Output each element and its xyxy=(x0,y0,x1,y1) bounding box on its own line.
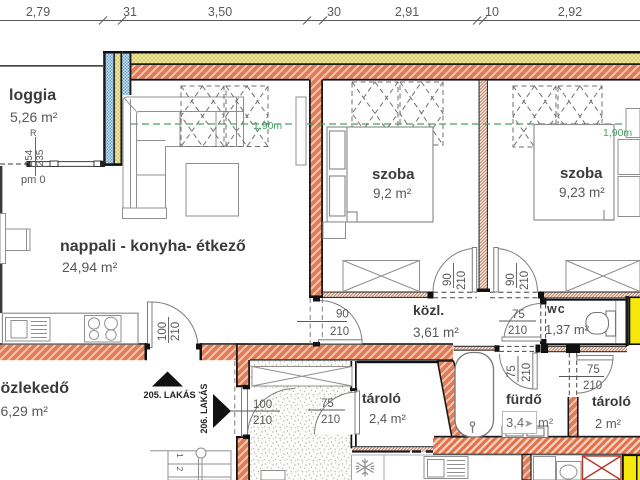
svg-text:6,29 m²: 6,29 m² xyxy=(1,403,49,419)
svg-text:30: 30 xyxy=(327,5,341,19)
svg-text:90: 90 xyxy=(442,273,454,286)
svg-text:10: 10 xyxy=(485,5,499,19)
svg-text:90: 90 xyxy=(336,309,349,321)
svg-text:205. LAKÁS: 205. LAKÁS xyxy=(144,389,196,400)
svg-text:loggia: loggia xyxy=(9,87,56,104)
svg-text:1,37 m²: 1,37 m² xyxy=(545,322,590,337)
svg-text:m²: m² xyxy=(538,415,554,430)
svg-text:254: 254 xyxy=(24,149,35,166)
svg-text:90: 90 xyxy=(505,273,517,286)
svg-text:75: 75 xyxy=(587,364,600,376)
svg-text:3,61 m²: 3,61 m² xyxy=(413,325,459,340)
svg-text:2,91: 2,91 xyxy=(395,5,419,19)
svg-text:3,4: 3,4 xyxy=(506,415,524,430)
svg-text:210: 210 xyxy=(330,326,349,338)
svg-text:210: 210 xyxy=(519,271,531,290)
svg-text:31: 31 xyxy=(123,5,137,19)
svg-text:szoba: szoba xyxy=(560,165,603,182)
svg-text:2 m²: 2 m² xyxy=(595,416,622,431)
svg-text:2,92: 2,92 xyxy=(558,5,582,19)
svg-text:75: 75 xyxy=(321,398,334,410)
svg-text:közl.: közl. xyxy=(413,302,444,318)
svg-text:nappali - konyha- étkező: nappali - konyha- étkező xyxy=(60,238,246,255)
svg-text:9,2 m²: 9,2 m² xyxy=(373,186,412,201)
svg-text:210: 210 xyxy=(508,325,527,337)
svg-text:206. LAKÁS: 206. LAKÁS xyxy=(199,384,209,434)
svg-text:2: 2 xyxy=(175,467,185,472)
svg-text:5,26 m²: 5,26 m² xyxy=(10,109,58,125)
svg-text:210: 210 xyxy=(253,415,272,427)
svg-text:1: 1 xyxy=(175,453,185,458)
svg-text:100: 100 xyxy=(157,322,169,341)
svg-text:R: R xyxy=(30,128,37,138)
svg-text:pm 0: pm 0 xyxy=(21,174,45,186)
svg-text:210: 210 xyxy=(456,271,468,290)
svg-text:235: 235 xyxy=(35,149,46,166)
svg-text:210: 210 xyxy=(170,322,182,341)
svg-text:75: 75 xyxy=(512,309,525,321)
svg-text:1,90m: 1,90m xyxy=(253,120,282,132)
svg-text:1,90m: 1,90m xyxy=(603,127,632,139)
svg-text:özlekedő: özlekedő xyxy=(1,380,70,397)
svg-text:210: 210 xyxy=(521,363,533,382)
svg-text:75: 75 xyxy=(506,365,518,378)
svg-text:2,4 m²: 2,4 m² xyxy=(369,411,407,426)
svg-text:szoba: szoba xyxy=(372,166,415,183)
svg-text:➤: ➤ xyxy=(524,418,533,430)
svg-text:9,23 m²: 9,23 m² xyxy=(559,185,605,200)
svg-text:3,50: 3,50 xyxy=(208,5,232,19)
svg-text:210: 210 xyxy=(583,380,602,392)
svg-text:210: 210 xyxy=(321,414,340,426)
svg-text:100: 100 xyxy=(253,399,272,411)
svg-text:2,79: 2,79 xyxy=(26,5,50,19)
svg-text:tároló: tároló xyxy=(592,393,631,409)
svg-text:wc: wc xyxy=(546,302,566,316)
svg-text:tároló: tároló xyxy=(362,390,401,406)
svg-text:24,94 m²: 24,94 m² xyxy=(62,259,118,275)
svg-text:fürdő: fürdő xyxy=(506,391,542,407)
